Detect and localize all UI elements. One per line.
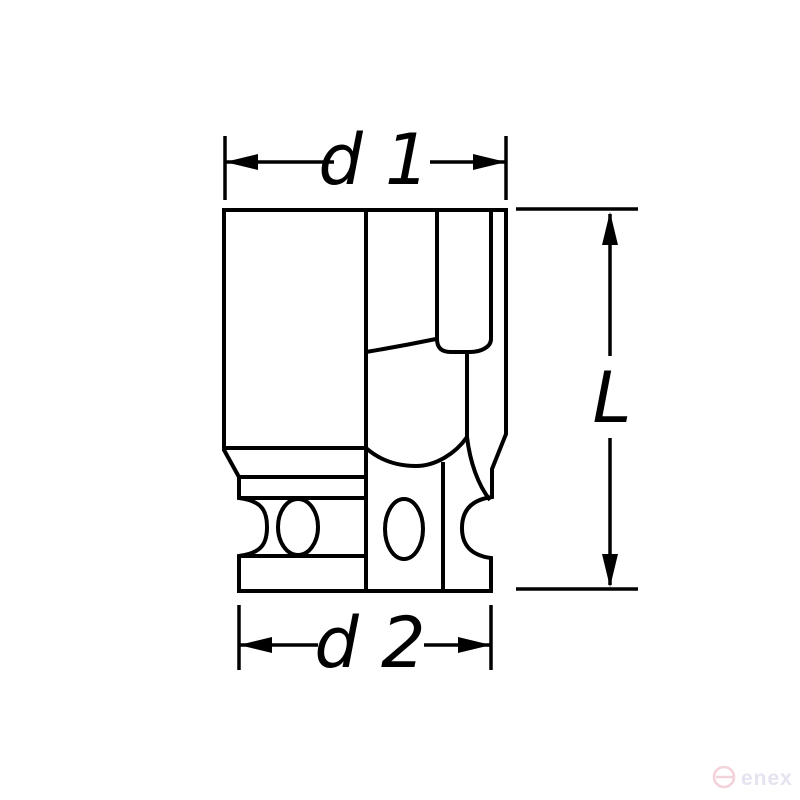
d2-arrowhead-right-icon: [458, 637, 491, 653]
watermark-text: enex: [741, 767, 793, 790]
socket-technical-drawing: d 1 d 2 L enex: [0, 0, 800, 800]
watermark: enex: [714, 767, 793, 790]
l-arrowhead-up-icon: [602, 212, 618, 245]
l-label: L: [593, 357, 632, 439]
hex-flat-bottom: [366, 339, 436, 352]
d1-label: d 1: [318, 119, 429, 201]
d2-label: d 2: [314, 602, 425, 684]
d1-arrowhead-right-icon: [473, 154, 506, 170]
bore-corner-descender: [467, 352, 490, 500]
dimension-d1: d 1: [225, 119, 506, 201]
pin-hole-left: [278, 499, 318, 555]
dimension-d2: d 2: [239, 602, 491, 684]
l-arrowhead-down-icon: [602, 554, 618, 587]
cone-transition-curve: [366, 437, 467, 466]
pin-hole-front: [385, 499, 423, 559]
d2-arrowhead-left-icon: [239, 637, 272, 653]
hex-bore-corners: [437, 210, 491, 352]
dimension-length: L: [516, 209, 638, 589]
d1-arrowhead-left-icon: [225, 154, 258, 170]
socket-drawing: [224, 210, 506, 591]
drawing-canvas: d 1 d 2 L enex: [0, 0, 800, 800]
